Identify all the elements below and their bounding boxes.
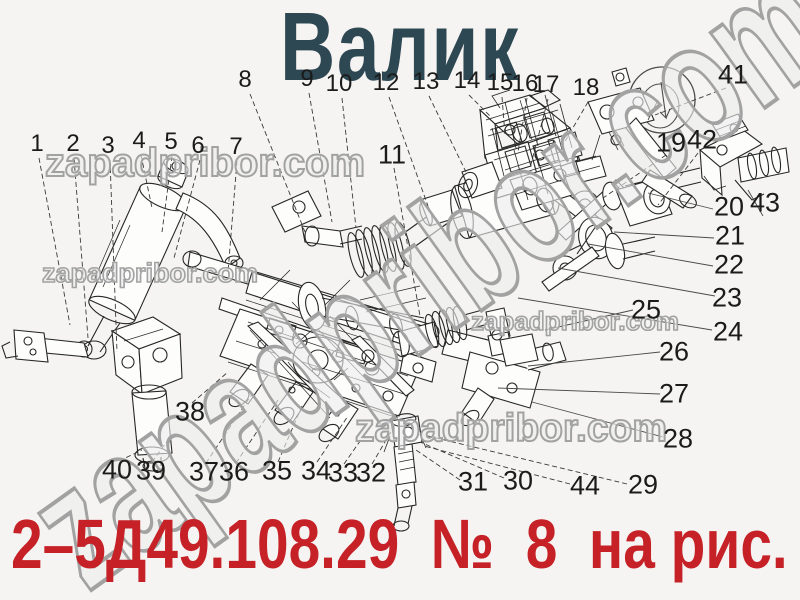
svg-text:zapadpribor.com: zapadpribor.com	[355, 407, 667, 450]
svg-text:zapadpribor.com: zapadpribor.com	[42, 258, 258, 288]
svg-text:zapadpribor.com: zapadpribor.com	[45, 141, 365, 185]
